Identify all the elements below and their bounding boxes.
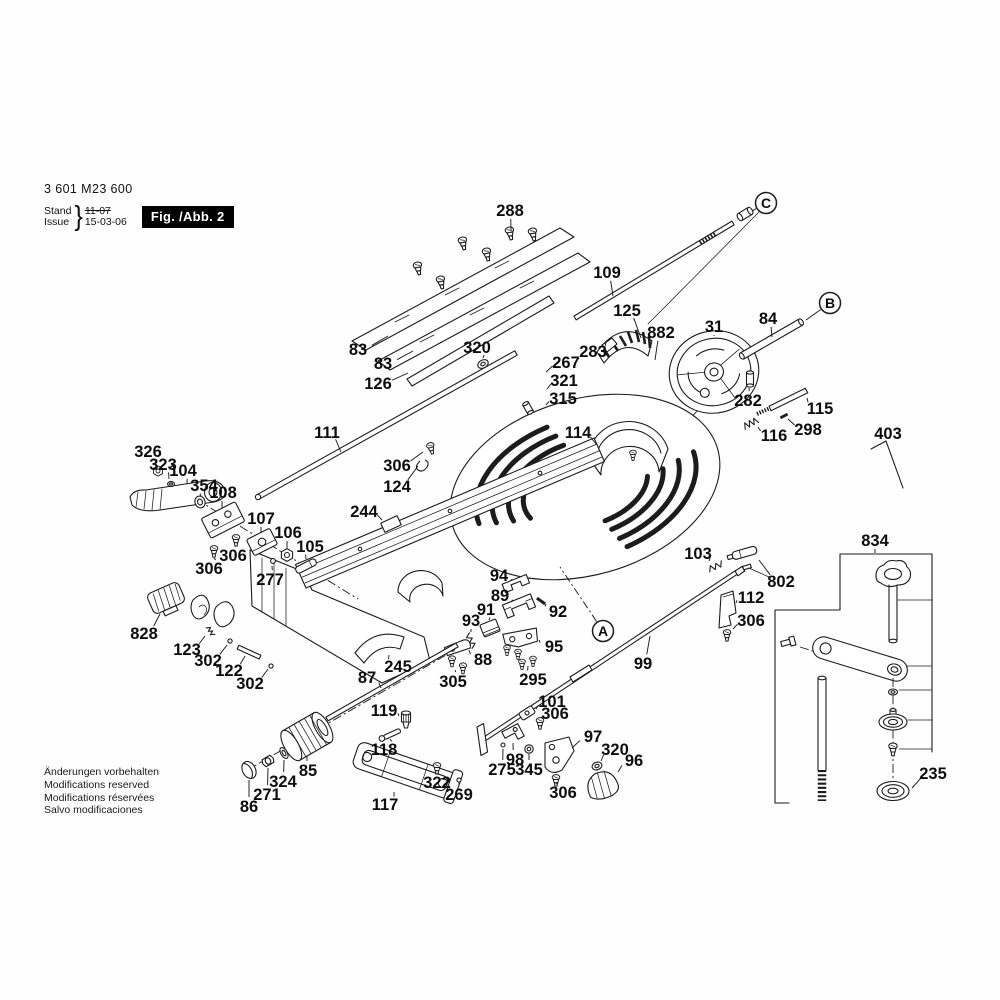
- part-label-86: 86: [240, 798, 258, 816]
- part-label-105: 105: [296, 538, 324, 556]
- part-label-306: 306: [195, 560, 223, 578]
- part-label-321: 321: [550, 372, 578, 390]
- hex-key-403: [871, 441, 903, 488]
- part-label-882: 882: [647, 324, 675, 342]
- part-label-298: 298: [794, 421, 822, 439]
- part-label-109: 109: [593, 264, 621, 282]
- knob-96: [584, 768, 621, 803]
- leader-line: [377, 515, 382, 520]
- part-label-115: 115: [807, 400, 834, 418]
- leader-line: [647, 636, 650, 654]
- part-label-288: 288: [496, 202, 524, 220]
- exploded-diagram: 2881091258822833184838332012626732131528…: [0, 0, 1000, 1000]
- reference-leader: [806, 310, 821, 320]
- clamp-assembly-box: [775, 554, 932, 803]
- leader-line: [545, 604, 546, 606]
- part-label-277: 277: [256, 571, 284, 589]
- part-label-125: 125: [613, 302, 641, 320]
- part-label-244: 244: [350, 503, 378, 521]
- clip-123: [206, 626, 215, 637]
- part-label-320: 320: [463, 339, 491, 357]
- part-label-403: 403: [874, 425, 902, 443]
- washer-235: [877, 782, 909, 801]
- part-label-345: 345: [515, 761, 543, 779]
- part-label-235: 235: [919, 765, 947, 783]
- part-label-295: 295: [519, 671, 547, 689]
- part-label-83: 83: [374, 355, 392, 373]
- part-label-124: 124: [383, 478, 411, 496]
- reference-letter-B: B: [825, 295, 835, 311]
- part-label-315: 315: [549, 390, 577, 408]
- part-label-119: 119: [371, 702, 398, 720]
- clip-101: [518, 705, 535, 720]
- leader-line: [572, 740, 580, 748]
- part-label-114: 114: [565, 424, 592, 442]
- part-label-84: 84: [759, 310, 778, 328]
- leader-line: [539, 640, 540, 643]
- part-label-302: 302: [236, 675, 264, 693]
- part-label-306: 306: [383, 457, 411, 475]
- leader-line: [410, 452, 423, 461]
- part-label-802: 802: [767, 573, 795, 591]
- latch-parts-group: [326, 574, 546, 720]
- star-knob: [876, 561, 911, 587]
- part-label-305: 305: [439, 673, 467, 691]
- part-label-245: 245: [384, 658, 412, 676]
- part-label-83: 83: [349, 341, 367, 359]
- bracket-112: [719, 591, 736, 628]
- part-label-96: 96: [625, 752, 643, 770]
- part-label-108: 108: [209, 484, 237, 502]
- part-label-99: 99: [634, 655, 652, 673]
- leader-line: [398, 713, 399, 716]
- part-label-834: 834: [861, 532, 889, 550]
- part-label-94: 94: [490, 567, 509, 585]
- part-label-88: 88: [474, 651, 492, 669]
- pin-282: [747, 371, 754, 387]
- leader-line: [618, 765, 622, 772]
- leader-line: [655, 341, 658, 360]
- part-label-107: 107: [247, 510, 275, 528]
- part-label-269: 269: [445, 786, 473, 804]
- pin-122: [237, 645, 261, 659]
- leader-line: [392, 373, 408, 380]
- part-label-87: 87: [358, 669, 376, 687]
- part-label-116: 116: [761, 427, 788, 445]
- parts-diagram-page: 3 601 M23 600 Stand Issue } 11-07 15-03-…: [0, 0, 1000, 1000]
- part-label-828: 828: [130, 625, 158, 643]
- part-label-85: 85: [299, 762, 317, 780]
- part-label-306: 306: [549, 784, 577, 802]
- thumb-screw-119: [402, 711, 411, 728]
- part-label-282: 282: [734, 392, 762, 410]
- part-label-31: 31: [705, 318, 723, 336]
- spring-116: [743, 417, 759, 429]
- part-label-92: 92: [549, 603, 567, 621]
- part-label-306: 306: [541, 705, 569, 723]
- part-label-111: 111: [314, 424, 340, 442]
- part-label-306: 306: [737, 612, 765, 630]
- part-label-97: 97: [584, 728, 602, 746]
- part-label-283: 283: [579, 343, 607, 361]
- part-label-306: 306: [219, 547, 247, 565]
- part-label-112: 112: [738, 589, 765, 607]
- reference-letter-A: A: [598, 623, 608, 639]
- reference-letter-C: C: [761, 195, 771, 211]
- part-label-95: 95: [545, 638, 563, 656]
- clip-124: [416, 460, 428, 471]
- pin-802: [727, 546, 758, 562]
- part-label-117: 117: [372, 796, 399, 814]
- part-label-118: 118: [371, 741, 398, 759]
- part-label-103: 103: [684, 545, 712, 563]
- part-label-126: 126: [364, 375, 392, 393]
- part-label-267: 267: [552, 354, 580, 372]
- leader-line: [469, 650, 470, 654]
- part-label-93: 93: [462, 612, 480, 630]
- pin-298: [780, 413, 788, 419]
